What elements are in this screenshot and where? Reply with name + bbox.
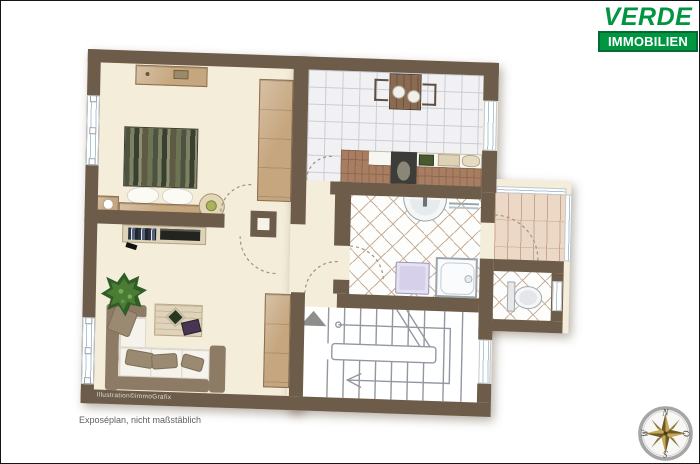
brand-subtitle: IMMOBILIEN [598,31,698,52]
stairhall-door-arc [305,261,338,294]
floorplan-page: Illustration©immoGrafix VERDE IMMOBILIEN… [0,0,700,464]
floor-plan: Illustration©immoGrafix [80,49,580,438]
door-arcs [80,49,580,438]
compass-east-label: O [681,430,691,437]
compass-north-label: N [661,408,669,418]
brand-logo: VERDE IMMOBILIEN [598,5,698,52]
kitchen-door-arc [306,156,332,182]
compass-south-label: S [663,449,668,459]
compass-rose: N O S W [637,405,694,462]
balcony-door-arc [494,215,539,260]
bedroom-door-arc [221,184,252,215]
brand-name: VERDE [598,5,698,30]
bathroom-door-arc [349,246,384,281]
living-door-arc [239,236,276,273]
disclaimer-text: Exposéplan, nicht maßstäblich [79,415,201,425]
